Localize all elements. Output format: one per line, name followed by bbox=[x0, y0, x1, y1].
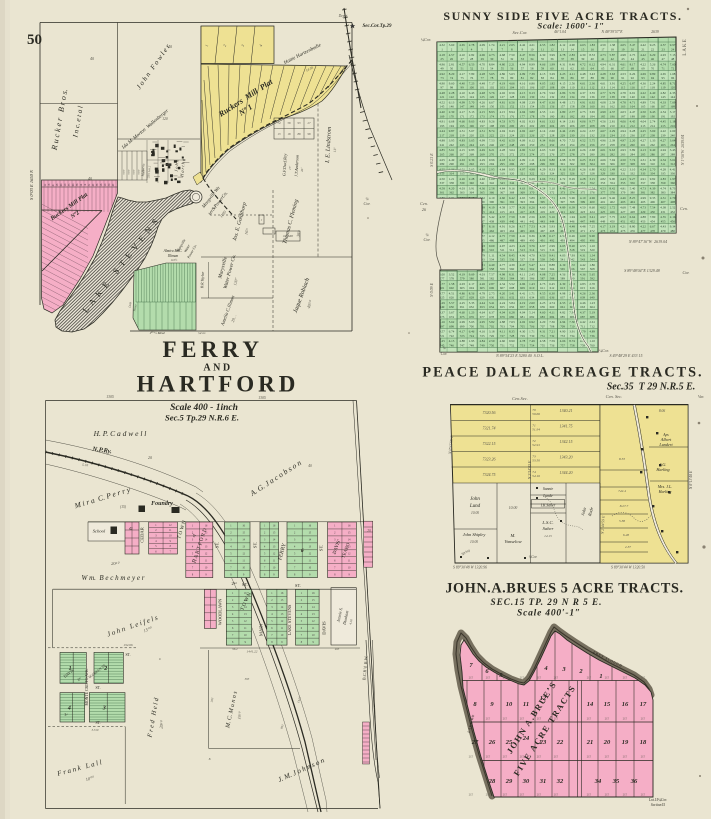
svg-text:539: 539 bbox=[540, 258, 545, 262]
svg-text:182: 182 bbox=[570, 114, 575, 118]
svg-text:288: 288 bbox=[670, 153, 675, 157]
svg-text:330: 330 bbox=[610, 172, 615, 176]
svg-text:366: 366 bbox=[489, 191, 494, 195]
svg-text:Sec.5 Tp.29 N.R.6 E.: Sec.5 Tp.29 N.R.6 E. bbox=[165, 413, 239, 423]
svg-text:430: 430 bbox=[650, 210, 655, 214]
svg-text:403: 403 bbox=[621, 200, 626, 204]
svg-text:399: 399 bbox=[580, 200, 585, 204]
svg-text:78: 78 bbox=[490, 76, 494, 80]
svg-text:708: 708 bbox=[550, 324, 555, 328]
svg-text:83: 83 bbox=[541, 76, 545, 80]
svg-text:50: 50 bbox=[450, 67, 454, 71]
svg-text:636: 636 bbox=[550, 296, 555, 300]
svg-text:214: 214 bbox=[650, 124, 655, 128]
svg-text:Cor.: Cor. bbox=[423, 237, 430, 242]
svg-text:725: 725 bbox=[480, 334, 485, 338]
svg-text:749: 749 bbox=[480, 343, 485, 347]
svg-text:102: 102 bbox=[489, 86, 494, 90]
svg-text:700: 700 bbox=[469, 324, 474, 328]
svg-text:¼Cor.: ¼Cor. bbox=[529, 555, 538, 559]
svg-text:58: 58 bbox=[530, 67, 534, 71]
svg-text:608: 608 bbox=[509, 286, 514, 290]
svg-text:710: 710 bbox=[570, 324, 575, 328]
svg-text:637: 637 bbox=[560, 296, 565, 300]
svg-text:603: 603 bbox=[460, 286, 465, 290]
svg-text:LAKE: LAKE bbox=[683, 38, 688, 55]
svg-text:687: 687 bbox=[580, 315, 585, 319]
svg-text:307: 307 bbox=[621, 162, 626, 166]
svg-text:229: 229 bbox=[560, 133, 565, 137]
svg-text:379: 379 bbox=[621, 191, 626, 195]
svg-text:663: 663 bbox=[580, 305, 585, 309]
svg-text:50.66: 50.66 bbox=[532, 412, 540, 416]
svg-text:215′: 215′ bbox=[537, 756, 542, 759]
svg-text:305: 305 bbox=[600, 162, 605, 166]
svg-text:474: 474 bbox=[610, 229, 615, 233]
svg-text:158: 158 bbox=[570, 105, 575, 109]
svg-text:380: 380 bbox=[630, 191, 635, 195]
svg-text:106: 106 bbox=[530, 86, 535, 90]
svg-text:417: 417 bbox=[520, 210, 525, 214]
svg-text:325: 325 bbox=[560, 172, 565, 176]
svg-text:139: 139 bbox=[621, 95, 626, 99]
svg-text:270: 270 bbox=[489, 153, 494, 157]
svg-text:1441.22: 1441.22 bbox=[246, 650, 257, 654]
svg-text:34: 34 bbox=[594, 778, 602, 785]
svg-text:Harling: Harling bbox=[655, 467, 669, 472]
svg-text:471: 471 bbox=[580, 229, 585, 233]
svg-text:427: 427 bbox=[621, 210, 626, 214]
svg-text:74: 74 bbox=[450, 76, 454, 80]
svg-text:129: 129 bbox=[520, 95, 525, 99]
svg-text:439: 439 bbox=[500, 219, 505, 223]
svg-text:87: 87 bbox=[581, 76, 585, 80]
svg-text:219: 219 bbox=[460, 133, 465, 137]
svg-text:Vanselow: Vanselow bbox=[504, 539, 522, 544]
svg-text:336: 336 bbox=[670, 172, 675, 176]
svg-text:280: 280 bbox=[590, 153, 595, 157]
svg-text:47: 47 bbox=[662, 57, 666, 61]
svg-text:673: 673 bbox=[440, 315, 445, 319]
svg-text:86: 86 bbox=[571, 76, 575, 80]
svg-text:312: 312 bbox=[670, 162, 675, 166]
svg-text:664: 664 bbox=[590, 305, 595, 309]
svg-text:513: 513 bbox=[520, 248, 525, 252]
svg-text:215′: 215′ bbox=[587, 794, 592, 797]
svg-text:M.W: M.W bbox=[128, 169, 131, 175]
svg-text:30: 30 bbox=[522, 778, 530, 785]
svg-text:538: 538 bbox=[530, 258, 535, 262]
svg-text:228: 228 bbox=[550, 133, 555, 137]
svg-text:138: 138 bbox=[610, 95, 615, 99]
svg-text:659: 659 bbox=[540, 305, 545, 309]
svg-text:16: 16 bbox=[591, 47, 595, 51]
svg-text:95: 95 bbox=[662, 76, 666, 80]
svg-text:N 0.09 E: N 0.09 E bbox=[429, 282, 434, 298]
svg-text:353: 353 bbox=[600, 181, 605, 185]
svg-text:234: 234 bbox=[610, 133, 615, 137]
svg-text:7323.26: 7323.26 bbox=[483, 457, 496, 462]
svg-text:132: 132 bbox=[550, 95, 555, 99]
svg-text:627: 627 bbox=[460, 296, 465, 300]
svg-text:709: 709 bbox=[560, 324, 565, 328]
svg-text:HARTFORD: HARTFORD bbox=[137, 372, 300, 397]
svg-text:W m. B e c h m e y e r: W m. B e c h m e y e r bbox=[82, 574, 145, 582]
svg-text:22: 22 bbox=[556, 739, 564, 746]
svg-text:168: 168 bbox=[670, 105, 675, 109]
svg-text:183: 183 bbox=[580, 114, 585, 118]
svg-text:N 89°54′23 E 5280 40 S.O.L.: N 89°54′23 E 5280 40 S.O.L. bbox=[495, 353, 544, 358]
svg-text:216: 216 bbox=[670, 124, 675, 128]
svg-text:327: 327 bbox=[580, 172, 585, 176]
svg-text:215′: 215′ bbox=[623, 718, 628, 721]
svg-text:215′: 215′ bbox=[605, 677, 610, 680]
svg-text:301: 301 bbox=[560, 162, 565, 166]
svg-text:120: 120 bbox=[162, 117, 168, 121]
svg-text:407: 407 bbox=[661, 200, 666, 204]
svg-text:49: 49 bbox=[440, 67, 444, 71]
svg-text:28: 28 bbox=[488, 778, 496, 785]
svg-text:155: 155 bbox=[540, 105, 545, 109]
svg-text:21: 21 bbox=[586, 739, 594, 746]
svg-text:463: 463 bbox=[500, 229, 505, 233]
svg-text:632: 632 bbox=[509, 296, 514, 300]
svg-text:238: 238 bbox=[650, 133, 655, 137]
svg-text:263: 263 bbox=[661, 143, 666, 147]
svg-text:393: 393 bbox=[520, 200, 525, 204]
svg-text:455: 455 bbox=[661, 219, 666, 223]
svg-text:698: 698 bbox=[449, 324, 454, 328]
svg-text:320: 320 bbox=[509, 172, 514, 176]
svg-text:674: 674 bbox=[449, 315, 454, 319]
svg-text:14: 14 bbox=[571, 47, 575, 51]
svg-text:512: 512 bbox=[509, 248, 514, 252]
svg-text:279: 279 bbox=[580, 153, 585, 157]
svg-text:537: 537 bbox=[520, 258, 525, 262]
svg-text:255: 255 bbox=[580, 143, 585, 147]
svg-text:649: 649 bbox=[440, 305, 445, 309]
svg-text:579: 579 bbox=[460, 277, 465, 281]
svg-text:186: 186 bbox=[610, 114, 615, 118]
svg-text:ST.: ST. bbox=[253, 542, 258, 548]
svg-text:110½: 110½ bbox=[171, 258, 178, 262]
svg-text:226: 226 bbox=[530, 133, 535, 137]
svg-text:120: 120 bbox=[670, 86, 675, 90]
svg-text:190: 190 bbox=[650, 114, 655, 118]
svg-text:98: 98 bbox=[450, 86, 454, 90]
svg-text:390: 390 bbox=[489, 200, 494, 204]
svg-text:273: 273 bbox=[520, 153, 525, 157]
svg-text:2.37: 2.37 bbox=[625, 545, 631, 549]
svg-text:655: 655 bbox=[500, 305, 505, 309]
svg-text:69: 69 bbox=[641, 67, 645, 71]
svg-text:24: 24 bbox=[671, 47, 675, 51]
svg-text:55: 55 bbox=[501, 67, 505, 71]
svg-text:221: 221 bbox=[480, 133, 485, 137]
svg-text:32: 32 bbox=[556, 778, 564, 785]
svg-text:742.4: 742.4 bbox=[618, 489, 626, 493]
svg-text:756: 756 bbox=[550, 343, 555, 347]
svg-text:Saher: Saher bbox=[543, 526, 554, 531]
svg-text:759: 759 bbox=[580, 343, 585, 347]
svg-text:323: 323 bbox=[540, 172, 545, 176]
svg-text:14.15: 14.15 bbox=[544, 534, 552, 538]
svg-text:145: 145 bbox=[440, 105, 445, 109]
svg-text:634: 634 bbox=[530, 296, 535, 300]
svg-text:303: 303 bbox=[210, 697, 214, 702]
svg-text:705: 705 bbox=[520, 324, 525, 328]
svg-text:360: 360 bbox=[670, 181, 675, 185]
svg-text:540: 540 bbox=[550, 258, 555, 262]
svg-text:51: 51 bbox=[461, 67, 465, 71]
svg-text:1342.15: 1342.15 bbox=[560, 439, 573, 444]
svg-text:248: 248 bbox=[509, 143, 514, 147]
svg-text:334: 334 bbox=[650, 172, 655, 176]
svg-text:456: 456 bbox=[670, 219, 675, 223]
svg-text:215′: 215′ bbox=[587, 718, 592, 721]
svg-text:367: 367 bbox=[500, 191, 505, 195]
svg-text:269: 269 bbox=[480, 153, 485, 157]
svg-text:153: 153 bbox=[520, 105, 525, 109]
svg-text:40: 40 bbox=[308, 464, 312, 468]
svg-text:730: 730 bbox=[530, 334, 535, 338]
svg-text:199: 199 bbox=[500, 124, 505, 128]
svg-text:266: 266 bbox=[449, 153, 454, 157]
svg-text:478: 478 bbox=[650, 229, 655, 233]
svg-text:354: 354 bbox=[610, 181, 615, 185]
svg-text:N 48°39′57″E: N 48°39′57″E bbox=[600, 30, 623, 34]
svg-text:7320.56: 7320.56 bbox=[483, 410, 496, 415]
svg-text:28: 28 bbox=[470, 57, 474, 61]
svg-text:658: 658 bbox=[530, 305, 535, 309]
svg-text:544: 544 bbox=[590, 258, 595, 262]
svg-text:187: 187 bbox=[621, 114, 626, 118]
svg-text:358: 358 bbox=[650, 181, 655, 185]
svg-text:215′: 215′ bbox=[554, 756, 559, 759]
svg-text:287: 287 bbox=[661, 153, 666, 157]
svg-text:431: 431 bbox=[661, 210, 666, 214]
svg-text:611: 611 bbox=[540, 286, 545, 290]
svg-text:651: 651 bbox=[460, 305, 465, 309]
svg-text:Foundry: Foundry bbox=[151, 501, 173, 507]
svg-text:23: 23 bbox=[662, 47, 666, 51]
svg-text:340: 340 bbox=[469, 181, 474, 185]
svg-text:703: 703 bbox=[500, 324, 505, 328]
svg-text:384: 384 bbox=[670, 191, 675, 195]
svg-text:35: 35 bbox=[541, 57, 545, 61]
svg-text:324: 324 bbox=[550, 172, 555, 176]
svg-text:654: 654 bbox=[489, 305, 494, 309]
svg-text:104: 104 bbox=[509, 86, 514, 90]
svg-text:215′: 215′ bbox=[537, 677, 542, 680]
svg-text:ST.: ST. bbox=[215, 542, 220, 548]
svg-text:215′: 215′ bbox=[520, 677, 525, 680]
svg-text:706: 706 bbox=[530, 324, 535, 328]
svg-text:1⁶⁵ ½ Meal: 1⁶⁵ ½ Meal bbox=[149, 331, 164, 335]
svg-text:264: 264 bbox=[670, 143, 675, 147]
svg-text:215′: 215′ bbox=[641, 794, 646, 797]
svg-text:School: School bbox=[93, 529, 106, 534]
svg-text:640: 640 bbox=[590, 296, 595, 300]
svg-text:309: 309 bbox=[641, 162, 646, 166]
svg-text:277: 277 bbox=[560, 153, 565, 157]
svg-text:Cen.Sec.: Cen.Sec. bbox=[512, 396, 528, 401]
svg-text:21: 21 bbox=[641, 47, 645, 51]
svg-text:218: 218 bbox=[449, 133, 454, 137]
svg-text:213: 213 bbox=[641, 124, 646, 128]
svg-text:M.: M. bbox=[510, 533, 516, 538]
svg-text:205: 205 bbox=[560, 124, 565, 128]
svg-text:S 0°03 E 1650 N: S 0°03 E 1650 N bbox=[29, 169, 34, 200]
svg-text:185: 185 bbox=[600, 114, 605, 118]
svg-text:82: 82 bbox=[530, 76, 534, 80]
svg-text:257: 257 bbox=[600, 143, 605, 147]
svg-text:259: 259 bbox=[621, 143, 626, 147]
svg-text:298: 298 bbox=[530, 162, 535, 166]
svg-text:FERRY: FERRY bbox=[163, 337, 264, 362]
svg-text:171: 171 bbox=[460, 114, 465, 118]
svg-text:563: 563 bbox=[540, 267, 545, 271]
svg-text:53.50: 53.50 bbox=[532, 459, 540, 463]
svg-text:Var.: Var. bbox=[698, 394, 704, 399]
svg-text:68: 68 bbox=[631, 67, 635, 71]
svg-text:Cor.: Cor. bbox=[682, 270, 689, 275]
svg-text:97: 97 bbox=[440, 86, 444, 90]
svg-text:760: 760 bbox=[590, 343, 595, 347]
svg-text:240: 240 bbox=[670, 133, 675, 137]
svg-text:734: 734 bbox=[570, 334, 575, 338]
svg-text:699: 699 bbox=[460, 324, 465, 328]
svg-text:723: 723 bbox=[460, 334, 465, 338]
svg-text:206: 206 bbox=[570, 124, 575, 128]
svg-text:581: 581 bbox=[480, 277, 485, 281]
svg-text:404: 404 bbox=[630, 200, 635, 204]
svg-text:196: 196 bbox=[469, 124, 474, 128]
svg-text:40: 40 bbox=[90, 56, 94, 61]
svg-text:215′: 215′ bbox=[486, 718, 491, 721]
svg-text:447: 447 bbox=[580, 219, 585, 223]
svg-text:215′: 215′ bbox=[503, 756, 508, 759]
svg-text:656: 656 bbox=[509, 305, 514, 309]
svg-text:721: 721 bbox=[440, 334, 445, 338]
svg-text:405: 405 bbox=[641, 200, 646, 204]
svg-text:577: 577 bbox=[440, 277, 445, 281]
svg-text:391: 391 bbox=[500, 200, 505, 204]
svg-text:251: 251 bbox=[540, 143, 545, 147]
svg-text:754: 754 bbox=[530, 343, 535, 347]
svg-text:Section15: Section15 bbox=[651, 803, 665, 807]
svg-text:752: 752 bbox=[509, 343, 514, 347]
svg-text:1344.20: 1344.20 bbox=[560, 470, 573, 475]
svg-text:4: 4 bbox=[67, 705, 71, 711]
svg-text:93: 93 bbox=[298, 121, 302, 125]
svg-text:7321.74: 7321.74 bbox=[483, 426, 496, 431]
svg-text:191: 191 bbox=[661, 114, 666, 118]
svg-text:657: 657 bbox=[520, 305, 525, 309]
svg-text:241: 241 bbox=[440, 143, 445, 147]
svg-text:17: 17 bbox=[640, 701, 647, 708]
svg-text:518: 518 bbox=[570, 248, 575, 252]
svg-text:7324.75: 7324.75 bbox=[483, 472, 496, 477]
svg-text:375: 375 bbox=[580, 191, 585, 195]
svg-text:20: 20 bbox=[367, 529, 371, 533]
svg-text:166: 166 bbox=[650, 105, 655, 109]
svg-text:113: 113 bbox=[600, 86, 605, 90]
svg-text:274: 274 bbox=[530, 153, 535, 157]
svg-text:10: 10 bbox=[530, 47, 534, 51]
svg-text:149: 149 bbox=[480, 105, 485, 109]
svg-text:582: 582 bbox=[489, 277, 494, 281]
svg-text:442: 442 bbox=[530, 219, 535, 223]
svg-text:44: 44 bbox=[631, 57, 635, 61]
svg-text:243: 243 bbox=[460, 143, 465, 147]
svg-text:520: 520 bbox=[590, 248, 595, 252]
svg-text:536: 536 bbox=[509, 258, 514, 262]
svg-text:252: 252 bbox=[550, 143, 555, 147]
svg-text:736: 736 bbox=[590, 334, 595, 338]
svg-text:164: 164 bbox=[630, 105, 635, 109]
svg-text:208: 208 bbox=[590, 124, 595, 128]
svg-text:364: 364 bbox=[469, 191, 474, 195]
svg-text:66: 66 bbox=[611, 67, 615, 71]
svg-text:448: 448 bbox=[590, 219, 595, 223]
svg-text:253: 253 bbox=[560, 143, 565, 147]
svg-text:541: 541 bbox=[560, 258, 565, 262]
svg-text:704: 704 bbox=[509, 324, 514, 328]
svg-text:256: 256 bbox=[590, 143, 595, 147]
svg-text:454: 454 bbox=[650, 219, 655, 223]
svg-text:361: 361 bbox=[440, 191, 445, 195]
svg-text:202: 202 bbox=[530, 124, 535, 128]
svg-text:84: 84 bbox=[550, 76, 554, 80]
svg-text:1341.75: 1341.75 bbox=[560, 424, 573, 429]
svg-text:58: 58 bbox=[288, 121, 292, 125]
svg-text:N 0°13′40 E: N 0°13′40 E bbox=[689, 470, 693, 490]
svg-text:10.00: 10.00 bbox=[471, 511, 479, 515]
svg-text:616: 616 bbox=[590, 286, 595, 290]
svg-text:748: 748 bbox=[469, 343, 474, 347]
svg-text:15: 15 bbox=[581, 47, 585, 51]
svg-text:260: 260 bbox=[630, 143, 635, 147]
svg-text:250: 250 bbox=[530, 143, 535, 147]
svg-text:233: 233 bbox=[600, 133, 605, 137]
svg-text:ST.: ST. bbox=[95, 721, 100, 725]
svg-text:67: 67 bbox=[621, 67, 625, 71]
svg-text:733: 733 bbox=[560, 334, 565, 338]
svg-text:172: 172 bbox=[469, 114, 474, 118]
svg-text:726: 726 bbox=[489, 334, 494, 338]
svg-text:675: 675 bbox=[460, 315, 465, 319]
svg-text:328: 328 bbox=[590, 172, 595, 176]
svg-text:194: 194 bbox=[449, 124, 454, 128]
svg-text:137: 137 bbox=[600, 95, 605, 99]
svg-text:20⁾: 20⁾ bbox=[300, 168, 304, 172]
svg-text:CEDAR: CEDAR bbox=[140, 526, 145, 543]
svg-text:215′: 215′ bbox=[623, 756, 628, 759]
svg-text:515: 515 bbox=[540, 248, 545, 252]
svg-text:395: 395 bbox=[540, 200, 545, 204]
svg-text:629: 629 bbox=[480, 296, 485, 300]
svg-text:54: 54 bbox=[490, 67, 494, 71]
svg-text:697: 697 bbox=[440, 324, 445, 328]
svg-text:284: 284 bbox=[630, 153, 635, 157]
svg-text:604: 604 bbox=[469, 286, 474, 290]
svg-text:MONTE CRISTO AVE.: MONTE CRISTO AVE. bbox=[85, 669, 89, 706]
svg-text:365: 365 bbox=[480, 191, 485, 195]
svg-text:110: 110 bbox=[570, 86, 575, 90]
svg-text:Scale 400′-1″: Scale 400′-1″ bbox=[517, 609, 581, 619]
svg-text:Cor.: Cor. bbox=[363, 201, 370, 206]
